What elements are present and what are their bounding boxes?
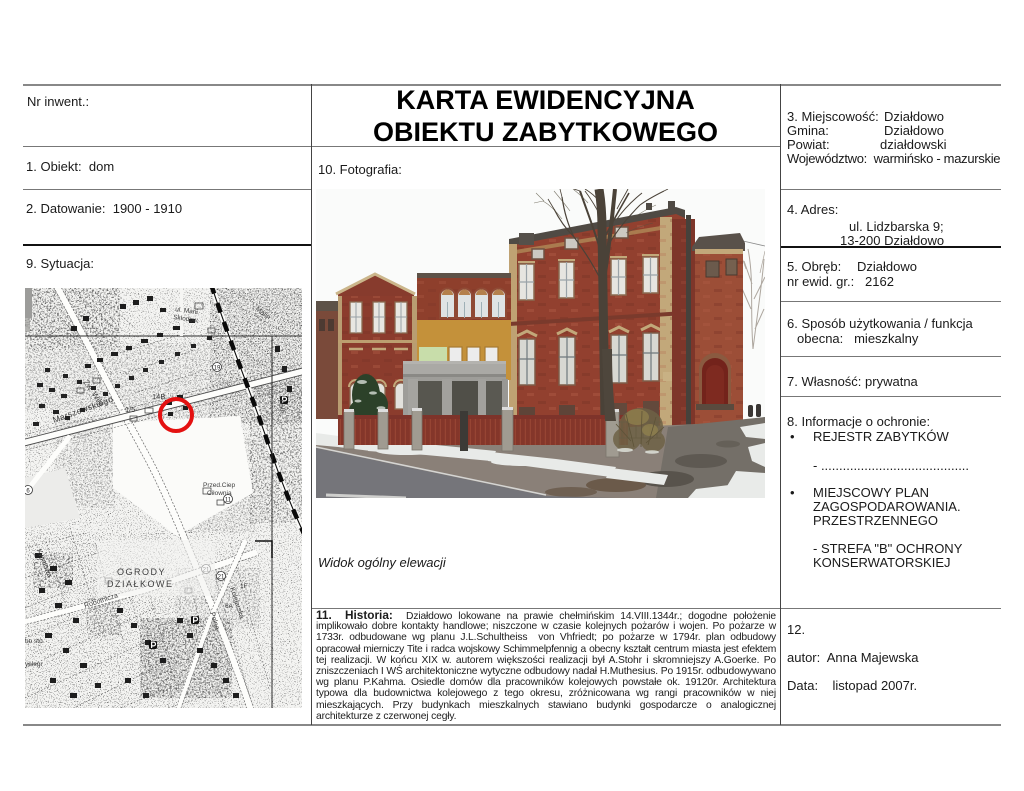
svg-text:OGRODY: OGRODY — [117, 567, 166, 577]
svg-text:11: 11 — [225, 498, 232, 504]
svg-text:DZIAŁKOWE: DZIAŁKOWE — [107, 579, 174, 589]
svg-text:Ciłownia: Ciłownia — [207, 490, 232, 497]
svg-text:19: 19 — [214, 366, 221, 372]
svg-text:14B: 14B — [152, 392, 165, 401]
svg-text:yelegr: yelegr — [25, 661, 44, 668]
svg-text:bo sto: bo sto — [25, 638, 43, 645]
svg-text:Przed.Ciep: Przed.Ciep — [203, 482, 236, 489]
svg-text:1/5: 1/5 — [125, 405, 135, 414]
svg-text:21: 21 — [218, 575, 225, 581]
svg-text:6A: 6A — [225, 603, 234, 610]
svg-text:1F: 1F — [240, 583, 248, 590]
